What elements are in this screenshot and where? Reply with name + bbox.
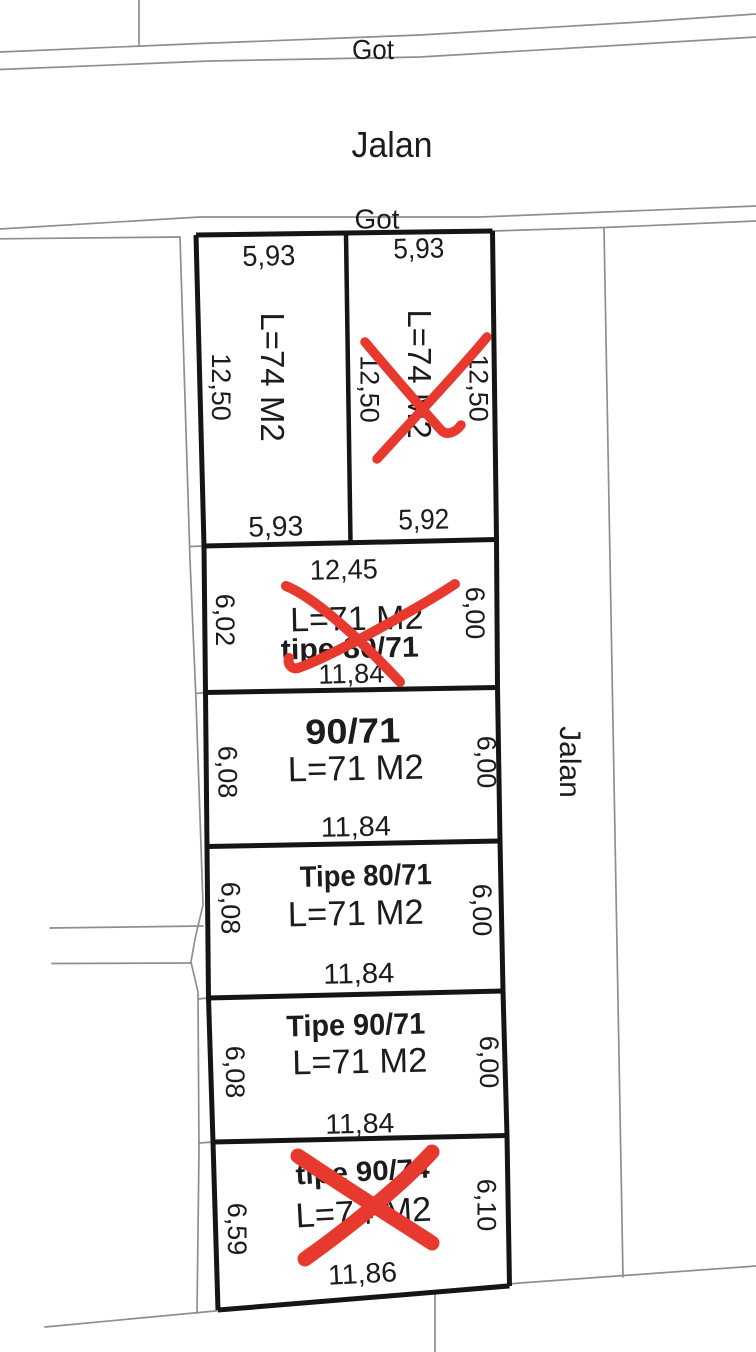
svg-text:6,08: 6,08 bbox=[213, 746, 243, 799]
svg-text:6,00: 6,00 bbox=[460, 587, 490, 640]
svg-text:L=71 M2: L=71 M2 bbox=[287, 748, 424, 790]
svg-text:6,08: 6,08 bbox=[220, 1046, 250, 1099]
svg-text:5,93: 5,93 bbox=[248, 510, 304, 543]
svg-text:6,59: 6,59 bbox=[222, 1203, 252, 1256]
svg-text:6,00: 6,00 bbox=[467, 884, 497, 937]
svg-text:Got: Got bbox=[355, 204, 400, 235]
svg-text:5,92: 5,92 bbox=[398, 503, 450, 536]
svg-text:Jalan: Jalan bbox=[553, 726, 586, 798]
svg-text:11,86: 11,86 bbox=[327, 1256, 398, 1291]
svg-text:Got: Got bbox=[352, 34, 394, 65]
svg-text:Tipe 80/71: Tipe 80/71 bbox=[299, 858, 432, 894]
svg-text:11,84: 11,84 bbox=[323, 957, 395, 990]
svg-text:5,93: 5,93 bbox=[393, 232, 445, 265]
svg-text:6,00: 6,00 bbox=[472, 736, 502, 789]
svg-text:6,08: 6,08 bbox=[216, 882, 246, 935]
svg-text:12,50: 12,50 bbox=[206, 353, 236, 421]
svg-text:6,10: 6,10 bbox=[472, 1179, 502, 1232]
svg-text:L=71 M2: L=71 M2 bbox=[292, 1042, 428, 1083]
svg-text:Tipe 90/71: Tipe 90/71 bbox=[286, 1008, 426, 1044]
svg-text:6,00: 6,00 bbox=[474, 1036, 504, 1089]
svg-text:90/71: 90/71 bbox=[305, 711, 401, 752]
svg-text:12,45: 12,45 bbox=[309, 553, 378, 585]
svg-text:L=74 M2: L=74 M2 bbox=[254, 312, 291, 441]
svg-text:11,84: 11,84 bbox=[320, 810, 391, 842]
svg-text:6,02: 6,02 bbox=[210, 594, 240, 647]
svg-text:L=71 M2: L=71 M2 bbox=[287, 893, 424, 935]
svg-text:5,93: 5,93 bbox=[242, 240, 296, 273]
svg-text:11,84: 11,84 bbox=[325, 1107, 395, 1139]
svg-text:Jalan: Jalan bbox=[352, 124, 433, 165]
